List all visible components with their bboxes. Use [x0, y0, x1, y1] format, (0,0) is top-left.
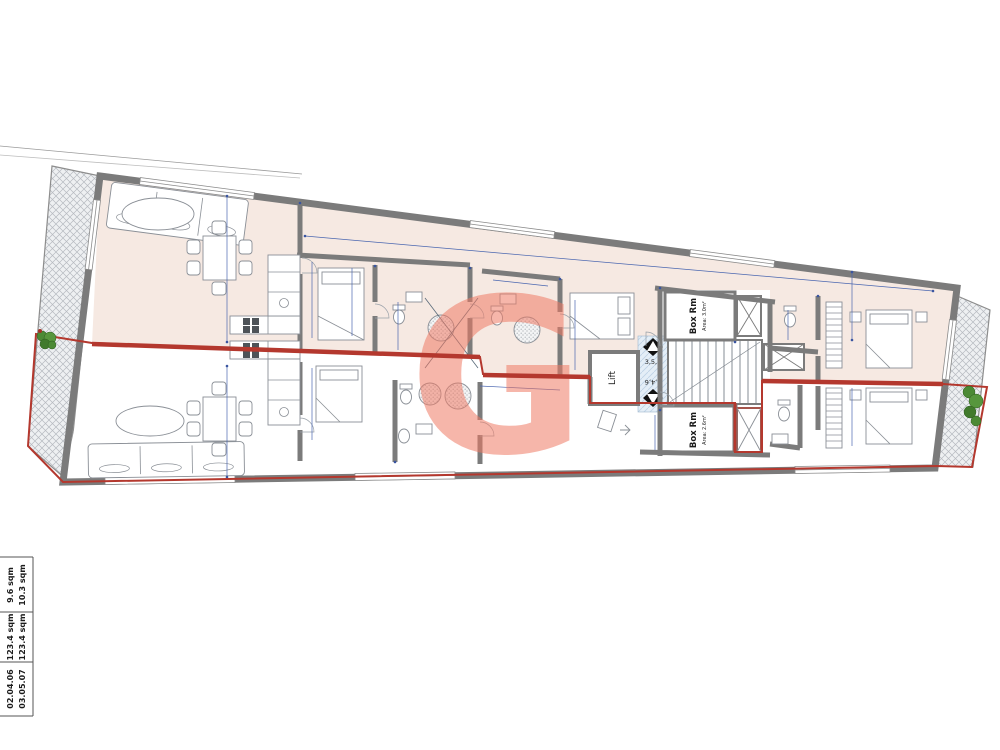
- bathroom-upper-right: [784, 306, 796, 327]
- box-room-lower-label: Box Rm: [689, 412, 699, 448]
- coffee-table-lower: [116, 406, 184, 436]
- box-room-upper: Box Rm Area: 3.0m²: [665, 292, 735, 340]
- legend-terrace-row0: 9.6 sqm: [6, 567, 15, 603]
- screenshot-root: Lift 3,5,7 2,4,6 Box Rm Area: 3.0m² Box …: [0, 0, 1000, 750]
- wardrobe-lower: [826, 388, 842, 448]
- floor-plan-canvas: Lift 3,5,7 2,4,6 Box Rm Area: 3.0m² Box …: [0, 0, 1000, 750]
- legend-units-row0: 02.04.06: [6, 669, 15, 709]
- lift-room: Lift: [590, 352, 638, 404]
- box-room-lower: Box Rm Area: 2.6m²: [660, 406, 735, 452]
- box-room-lower-area: Area: 2.6m²: [702, 415, 708, 445]
- wardrobe-upper: [826, 302, 842, 368]
- site-boundary-lines: [0, 146, 302, 178]
- legend-terrace-row1: 10.3 sqm: [18, 564, 27, 605]
- legend-table: 9.6 sqm 10.3 sqm 123.4 sqm 123.4 sqm 02.…: [0, 557, 33, 716]
- coffee-table-upper: [122, 198, 194, 230]
- lift-label: Lift: [608, 371, 618, 386]
- legend-area-row0: 123.4 sqm: [6, 614, 15, 661]
- bed-lower-1: [316, 366, 362, 422]
- box-room-upper-area: Area: 3.0m²: [702, 301, 708, 331]
- box-room-upper-label: Box Rm: [689, 298, 699, 334]
- staircase: [668, 340, 762, 404]
- bed-upper-1: [318, 268, 364, 340]
- legend-units-row1: 03.05.07: [18, 669, 27, 708]
- legend-area-row1: 123.4 sqm: [18, 614, 27, 661]
